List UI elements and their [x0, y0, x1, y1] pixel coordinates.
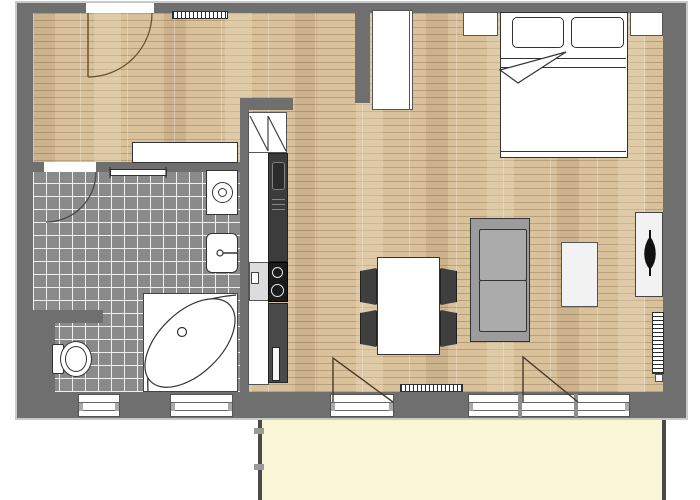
bedroom-radiator-valve: [655, 374, 663, 382]
dishwasher-door: [272, 347, 280, 381]
balcony-jamb-mark: [254, 464, 264, 470]
exterior-wall-left: [17, 3, 33, 418]
wardrobe: [372, 10, 413, 110]
dining-chair: [440, 268, 457, 305]
counter-handle: [251, 272, 259, 284]
sofa-cushion: [479, 280, 527, 332]
bed-sheet-line: [501, 67, 626, 68]
kitchen-wall-stub: [247, 98, 293, 110]
living-room-window: [468, 394, 630, 417]
toilet-partition: [33, 310, 103, 323]
hall-sideboard: [132, 142, 238, 163]
hall-radiator: [172, 11, 228, 19]
burner-icon: [271, 284, 284, 297]
bed-sheet-line: [501, 58, 626, 59]
nightstand-right: [630, 12, 663, 36]
bathroom-window: [78, 394, 120, 417]
bedroom-partition-wall: [355, 3, 370, 103]
toilet-seat: [65, 346, 87, 372]
bathroom-door-opening: [44, 162, 96, 172]
pillow: [512, 17, 564, 48]
coffee-table: [561, 242, 598, 307]
balcony: [258, 418, 666, 500]
dining-chair: [360, 268, 377, 305]
bed-foot-line: [501, 151, 626, 152]
oven: [268, 153, 288, 262]
wardrobe-divider: [409, 11, 410, 109]
exterior-wall-right: [663, 3, 686, 418]
kitchen-counter: [249, 262, 269, 301]
towel-rail: [110, 169, 167, 176]
washing-machine-drum-icon: [218, 188, 227, 197]
washing-machine: [206, 170, 238, 215]
dining-chair: [440, 310, 457, 347]
double-bed: [500, 12, 628, 158]
kitchen-tall-cabinet: [248, 112, 287, 153]
sofa-cushion: [479, 229, 527, 281]
dining-table: [377, 257, 440, 355]
dining-chair: [360, 310, 377, 347]
cooktop: [268, 262, 288, 302]
entry-door-opening: [86, 3, 154, 13]
bathroom-sink: [206, 233, 238, 273]
tv-sideboard: [635, 212, 663, 297]
floor-plan: [0, 0, 700, 500]
burner-icon: [272, 267, 283, 278]
living-room-radiator: [400, 384, 463, 392]
window-mullion: [574, 394, 578, 417]
balcony-jamb-mark: [254, 428, 264, 434]
nightstand-left: [463, 12, 498, 36]
pillow: [571, 17, 624, 48]
bedroom-radiator: [652, 312, 664, 374]
kitchen-lower-cabinet: [268, 303, 288, 383]
sofa: [470, 218, 530, 342]
oven-door: [272, 162, 285, 190]
balcony-door-left: [330, 394, 394, 417]
window-mullion: [518, 394, 522, 417]
bathroom-window: [170, 394, 233, 417]
oven-vent-lines: [272, 196, 285, 210]
corner-bathtub: [143, 293, 238, 392]
